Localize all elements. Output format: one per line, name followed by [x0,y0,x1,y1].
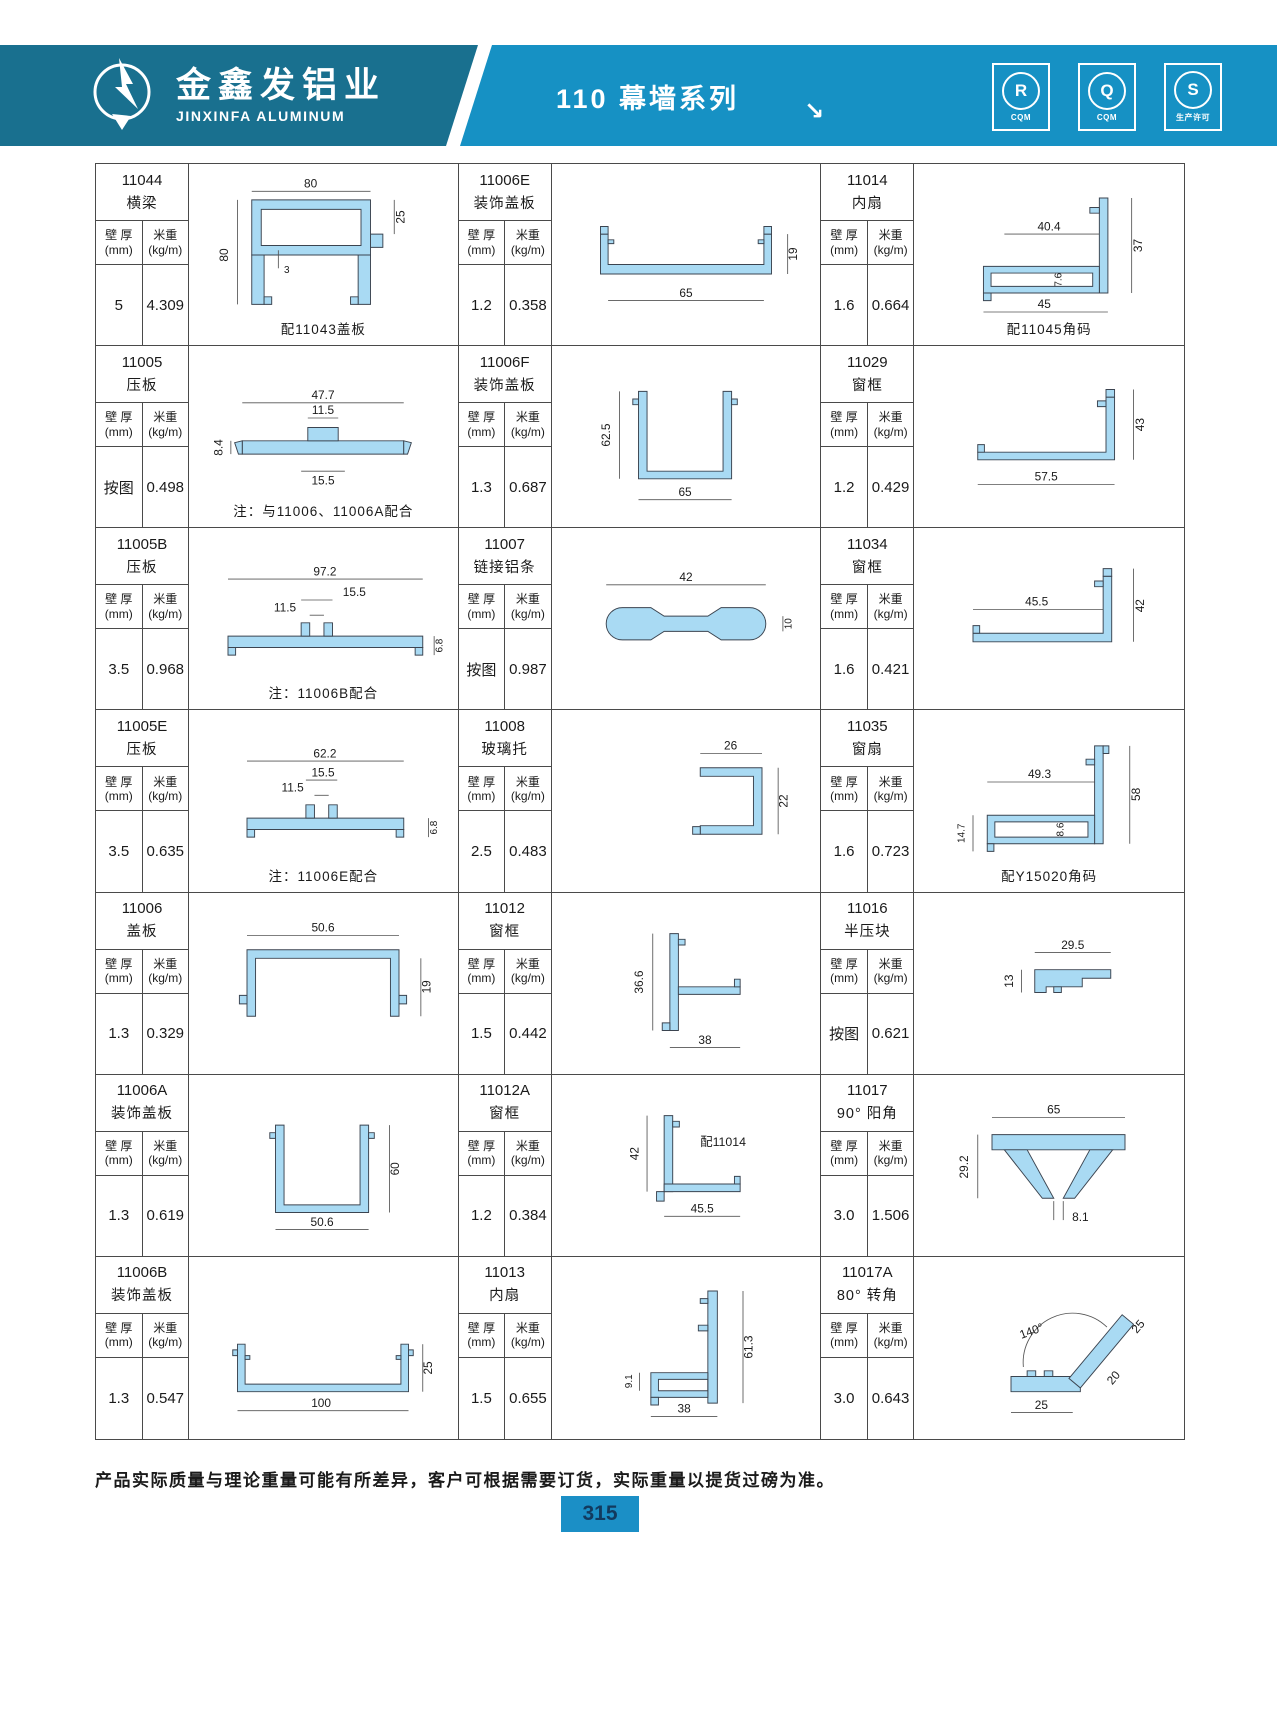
svg-text:42: 42 [627,1147,641,1160]
svg-text:47.7: 47.7 [312,388,335,402]
weight-value: 0.358 [505,265,551,345]
product-cell-11006: 11006盖板 壁 厚(mm)米重(kg/m) 1.30.329 50.6 19 [96,893,459,1075]
profile-diagram: 42 10 [554,543,818,695]
col-header-thickness: 壁 厚(mm) [821,403,868,446]
svg-text:50.6: 50.6 [312,921,335,935]
arrow-icon: ↘ [804,97,824,126]
thickness-value: 2.5 [459,811,506,891]
profile-diagram: 65 19 [554,179,818,331]
product-cell-11017: 1101790° 阳角 壁 厚(mm)米重(kg/m) 3.01.506 65 … [821,1075,1184,1257]
svg-text:38: 38 [698,1033,712,1047]
svg-text:61.3: 61.3 [741,1335,755,1358]
col-header-thickness: 壁 厚(mm) [821,1314,868,1357]
profile-drawing: 97.2 15.5 11.5 6.8 注：11006B配合 [189,528,458,709]
profile-drawing: 43 57.5 [914,346,1184,527]
thickness-value: 1.3 [459,447,506,527]
profile-diagram: 60 50.6 [191,1089,455,1241]
svg-text:3: 3 [284,265,290,276]
profile-note: 配11045角码 [914,318,1184,338]
product-name: 玻璃托 [459,738,551,759]
col-header-thickness: 壁 厚(mm) [459,1314,506,1357]
weight-value: 0.643 [868,1358,914,1439]
weight-value: 0.664 [868,265,914,345]
product-code: 11017A [821,1264,913,1281]
product-name: 压板 [96,374,188,395]
product-name: 窗框 [821,556,913,577]
profile-drawing: 36.6 38 [552,893,821,1074]
svg-text:49.3: 49.3 [1028,767,1051,781]
profile-drawing: 62.5 65 [552,346,821,527]
product-name: 压板 [96,556,188,577]
weight-value: 0.498 [143,447,189,527]
weight-value: 0.442 [505,994,551,1074]
product-cell-11013: 11013内扇 壁 厚(mm)米重(kg/m) 1.50.655 9.1 61.… [459,1257,822,1439]
svg-text:42: 42 [679,570,692,584]
profile-note: 注：11006B配合 [189,682,458,702]
product-name: 窗框 [459,920,551,941]
profile-drawing: 9.1 61.3 38 [552,1257,821,1439]
profile-diagram: 25 100 [191,1272,455,1424]
col-header-weight: 米重(kg/m) [505,585,551,628]
thickness-value: 3.0 [821,1358,868,1439]
col-header-weight: 米重(kg/m) [868,1132,914,1175]
col-header-weight: 米重(kg/m) [868,585,914,628]
product-cell-11006E: 11006E装饰盖板 壁 厚(mm)米重(kg/m) 1.20.358 65 1… [459,164,822,346]
col-header-thickness: 壁 厚(mm) [96,1132,143,1175]
col-header-thickness: 壁 厚(mm) [821,221,868,264]
weight-value: 0.421 [868,629,914,709]
product-grid: 11044横梁 壁 厚(mm)米重(kg/m) 54.309 80 80 25 … [95,163,1185,1440]
product-cell-11005B: 11005B压板 壁 厚(mm)米重(kg/m) 3.50.968 97.2 1… [96,528,459,710]
product-cell-11034: 11034窗框 壁 厚(mm)米重(kg/m) 1.60.421 45.5 42 [821,528,1184,710]
col-header-weight: 米重(kg/m) [143,585,189,628]
profile-drawing: 配11014 42 45.5 [552,1075,821,1256]
svg-text:15.5: 15.5 [343,585,366,599]
col-header-weight: 米重(kg/m) [505,221,551,264]
thickness-value: 3.0 [821,1176,868,1256]
svg-text:8.1: 8.1 [1072,1210,1089,1224]
svg-text:13: 13 [1002,974,1016,988]
weight-value: 0.621 [868,994,914,1074]
thickness-value: 1.5 [459,994,506,1074]
svg-text:25: 25 [1035,1398,1049,1412]
product-name: 装饰盖板 [96,1102,188,1123]
weight-value: 0.687 [505,447,551,527]
svg-text:80: 80 [217,248,231,262]
svg-text:29.2: 29.2 [957,1156,971,1179]
product-cell-11006A: 11006A装饰盖板 壁 厚(mm)米重(kg/m) 1.30.619 60 5… [96,1075,459,1257]
product-cell-11006B: 11006B装饰盖板 壁 厚(mm)米重(kg/m) 1.30.547 25 1… [96,1257,459,1439]
svg-text:65: 65 [678,485,692,499]
profile-diagram: 65 29.2 8.1 [917,1089,1181,1241]
company-logo: 金鑫发铝业 JINXINFA ALUMINUM [88,54,386,138]
svg-text:36.6: 36.6 [632,970,646,993]
col-header-thickness: 壁 厚(mm) [821,1132,868,1175]
product-code: 11012A [459,1082,551,1099]
col-header-weight: 米重(kg/m) [143,950,189,993]
cert-badge-q-icon: Q CQM [1078,63,1136,131]
svg-text:60: 60 [388,1162,402,1176]
col-header-thickness: 壁 厚(mm) [459,585,506,628]
svg-text:25: 25 [422,1361,436,1375]
svg-text:14.7: 14.7 [957,823,968,843]
col-header-thickness: 壁 厚(mm) [96,1314,143,1357]
profile-note: 注：与11006、11006A配合 [189,500,458,520]
product-code: 11006F [459,354,551,371]
product-name: 链接铝条 [459,556,551,577]
product-cell-11017A: 11017A80° 转角 壁 厚(mm)米重(kg/m) 3.00.643 14… [821,1257,1184,1439]
thickness-value: 3.5 [96,811,143,891]
profile-diagram: 43 57.5 [917,361,1181,513]
product-code: 11006A [96,1082,188,1099]
product-code: 11016 [821,900,913,917]
svg-text:45.5: 45.5 [691,1202,714,1216]
svg-text:62.2: 62.2 [314,746,337,760]
profile-drawing: 65 19 [552,164,821,345]
svg-text:8.4: 8.4 [212,439,226,456]
svg-text:57.5: 57.5 [1035,469,1058,483]
svg-text:26: 26 [724,739,738,753]
thickness-value: 按图 [459,629,506,709]
profile-diagram: 80 80 25 3 [191,179,455,331]
svg-text:38: 38 [677,1402,691,1416]
weight-value: 1.506 [868,1176,914,1256]
svg-text:97.2: 97.2 [314,564,337,578]
weight-value: 4.309 [143,265,189,345]
product-name: 盖板 [96,920,188,941]
thickness-value: 5 [96,265,143,345]
product-code: 11005E [96,718,188,735]
product-name: 横梁 [96,192,188,213]
svg-text:11.5: 11.5 [282,780,305,794]
thickness-value: 1.6 [821,811,868,891]
svg-text:10: 10 [783,618,794,630]
thickness-value: 3.5 [96,629,143,709]
company-logo-icon [88,54,162,138]
svg-text:22: 22 [777,794,791,807]
product-code: 11017 [821,1082,913,1099]
product-name: 装饰盖板 [459,192,551,213]
weight-value: 0.987 [505,629,551,709]
profile-diagram: 9.1 61.3 38 [554,1272,818,1424]
product-cell-11008: 11008玻璃托 壁 厚(mm)米重(kg/m) 2.50.483 26 22 [459,710,822,892]
product-name: 90° 阳角 [821,1102,913,1123]
svg-text:37: 37 [1131,238,1145,251]
profile-drawing: 47.7 11.5 8.4 15.5 注：与11006、11006A配合 [189,346,458,527]
col-header-weight: 米重(kg/m) [505,1314,551,1357]
product-name: 装饰盖板 [96,1284,188,1305]
svg-text:45: 45 [1038,297,1052,311]
thickness-value: 1.6 [821,265,868,345]
svg-text:40.4: 40.4 [1038,219,1061,233]
product-name: 窗框 [459,1102,551,1123]
product-cell-11007: 11007链接铝条 壁 厚(mm)米重(kg/m) 按图0.987 42 10 [459,528,822,710]
product-code: 11013 [459,1264,551,1281]
weight-value: 0.429 [868,447,914,527]
thickness-value: 1.3 [96,994,143,1074]
col-header-weight: 米重(kg/m) [505,767,551,810]
svg-text:58: 58 [1129,787,1143,801]
svg-text:65: 65 [679,285,693,299]
header-left-block: 金鑫发铝业 JINXINFA ALUMINUM [0,45,480,146]
page-number: 315 [561,1496,639,1532]
product-code: 11008 [459,718,551,735]
thickness-value: 按图 [96,447,143,527]
profile-drawing: 42 10 [552,528,821,709]
profile-drawing: 60 50.6 [189,1075,458,1256]
product-cell-11006F: 11006F装饰盖板 壁 厚(mm)米重(kg/m) 1.30.687 62.5… [459,346,822,528]
header-band: 金鑫发铝业 JINXINFA ALUMINUM 110 幕墙系列 ↘ R CQM… [0,45,1277,146]
col-header-weight: 米重(kg/m) [505,950,551,993]
profile-diagram: 49.3 58 8.6 14.7 [917,725,1181,877]
profile-diagram: 62.2 15.5 11.5 6.8 [191,725,455,877]
svg-text:7.6: 7.6 [1054,272,1065,286]
product-code: 11012 [459,900,551,917]
col-header-thickness: 壁 厚(mm) [821,767,868,810]
weight-value: 0.723 [868,811,914,891]
product-code: 11035 [821,718,913,735]
svg-text:100: 100 [312,1396,332,1410]
col-header-weight: 米重(kg/m) [505,1132,551,1175]
profile-diagram: 50.6 19 [191,907,455,1059]
svg-text:19: 19 [786,247,800,261]
svg-text:140°: 140° [1018,1320,1046,1342]
thickness-value: 1.5 [459,1358,506,1439]
svg-text:19: 19 [420,980,434,994]
thickness-value: 1.2 [459,265,506,345]
col-header-weight: 米重(kg/m) [143,403,189,446]
col-header-thickness: 壁 厚(mm) [96,403,143,446]
series-title: 110 幕墙系列 [556,77,739,116]
product-cell-11012A: 11012A窗框 壁 厚(mm)米重(kg/m) 1.20.384 配11014… [459,1075,822,1257]
product-name: 压板 [96,738,188,759]
product-cell-11035: 11035窗扇 壁 厚(mm)米重(kg/m) 1.60.723 49.3 58… [821,710,1184,892]
svg-text:50.6: 50.6 [311,1215,334,1229]
weight-value: 0.968 [143,629,189,709]
svg-text:65: 65 [1047,1103,1061,1117]
product-name: 窗框 [821,374,913,395]
profile-drawing: 29.5 13 [914,893,1184,1074]
col-header-thickness: 壁 厚(mm) [459,950,506,993]
profile-diagram: 62.5 65 [554,361,818,513]
thickness-value: 按图 [821,994,868,1074]
col-header-weight: 米重(kg/m) [505,403,551,446]
svg-text:62.5: 62.5 [599,423,613,446]
footer-disclaimer: 产品实际质量与理论重量可能有所差异，客户可根据需要订货，实际重量以提货过磅为准。 [95,1466,835,1491]
profile-diagram: 36.6 38 [554,907,818,1059]
product-name: 80° 转角 [821,1284,913,1305]
profile-drawing: 25 100 [189,1257,458,1439]
product-name: 内扇 [821,192,913,213]
profile-diagram: 配11014 42 45.5 [554,1089,818,1241]
svg-text:8.6: 8.6 [1055,822,1066,836]
profile-diagram: 97.2 15.5 11.5 6.8 [191,543,455,695]
profile-drawing: 62.2 15.5 11.5 6.8 注：11006E配合 [189,710,458,891]
svg-text:6.8: 6.8 [429,820,440,834]
product-code: 11007 [459,536,551,553]
svg-text:25: 25 [1129,1316,1148,1335]
profile-drawing: 140° 25 20 25 [914,1257,1184,1439]
svg-text:29.5: 29.5 [1061,938,1084,952]
col-header-weight: 米重(kg/m) [143,767,189,810]
profile-diagram: 26 22 [554,725,818,877]
profile-diagram: 45.5 42 [917,543,1181,695]
svg-text:25: 25 [394,210,408,224]
header-right-block: 110 幕墙系列 ↘ R CQM Q CQM S 生产许可 [456,45,1277,146]
profile-diagram: 47.7 11.5 8.4 15.5 [191,361,455,513]
product-name: 半压块 [821,920,913,941]
product-code: 11005 [96,354,188,371]
svg-text:80: 80 [304,179,318,191]
product-cell-11005E: 11005E压板 壁 厚(mm)米重(kg/m) 3.50.635 62.2 1… [96,710,459,892]
svg-text:11.5: 11.5 [274,600,297,614]
profile-note: 配Y15020角码 [914,865,1184,885]
profile-drawing: 80 80 25 3 配11043盖板 [189,164,458,345]
col-header-thickness: 壁 厚(mm) [96,585,143,628]
profile-drawing: 40.4 37 7.6 45 配11045角码 [914,164,1184,345]
col-header-weight: 米重(kg/m) [868,767,914,810]
product-code: 11034 [821,536,913,553]
product-code: 11006E [459,172,551,189]
svg-text:45.5: 45.5 [1025,595,1048,609]
certification-badges: R CQM Q CQM S 生产许可 [992,63,1222,131]
cert-badge-s-icon: S 生产许可 [1164,63,1222,131]
col-header-thickness: 壁 厚(mm) [96,950,143,993]
cert-badge-r-icon: R CQM [992,63,1050,131]
weight-value: 0.329 [143,994,189,1074]
thickness-value: 1.2 [821,447,868,527]
profile-drawing: 50.6 19 [189,893,458,1074]
svg-text:42: 42 [1133,599,1147,612]
thickness-value: 1.3 [96,1176,143,1256]
col-header-weight: 米重(kg/m) [868,403,914,446]
profile-drawing: 26 22 [552,710,821,891]
profile-note: 配11043盖板 [189,318,458,338]
product-cell-11012: 11012窗框 壁 厚(mm)米重(kg/m) 1.50.442 36.6 38 [459,893,822,1075]
product-cell-11044: 11044横梁 壁 厚(mm)米重(kg/m) 54.309 80 80 25 … [96,164,459,346]
company-name-en: JINXINFA ALUMINUM [176,108,386,124]
weight-value: 0.384 [505,1176,551,1256]
profile-drawing: 45.5 42 [914,528,1184,709]
profile-note: 注：11006E配合 [189,865,458,885]
weight-value: 0.635 [143,811,189,891]
col-header-thickness: 壁 厚(mm) [821,950,868,993]
profile-drawing: 65 29.2 8.1 [914,1075,1184,1256]
col-header-thickness: 壁 厚(mm) [96,221,143,264]
svg-text:9.1: 9.1 [624,1374,635,1388]
profile-note: 配11014 [700,1135,746,1149]
product-name: 装饰盖板 [459,374,551,395]
col-header-weight: 米重(kg/m) [143,1314,189,1357]
weight-value: 0.619 [143,1176,189,1256]
product-cell-11014: 11014内扇 壁 厚(mm)米重(kg/m) 1.60.664 40.4 37… [821,164,1184,346]
thickness-value: 1.2 [459,1176,506,1256]
product-cell-11029: 11029窗框 壁 厚(mm)米重(kg/m) 1.20.429 43 57.5 [821,346,1184,528]
product-code: 11044 [96,172,188,189]
col-header-thickness: 壁 厚(mm) [459,1132,506,1175]
weight-value: 0.655 [505,1358,551,1439]
svg-text:6.8: 6.8 [435,638,446,652]
product-name: 窗扇 [821,738,913,759]
col-header-weight: 米重(kg/m) [143,221,189,264]
svg-text:15.5: 15.5 [312,765,335,779]
product-code: 11029 [821,354,913,371]
product-code: 11006B [96,1264,188,1281]
col-header-weight: 米重(kg/m) [868,1314,914,1357]
col-header-thickness: 壁 厚(mm) [821,585,868,628]
col-header-thickness: 壁 厚(mm) [459,221,506,264]
col-header-weight: 米重(kg/m) [868,221,914,264]
weight-value: 0.547 [143,1358,189,1439]
weight-value: 0.483 [505,811,551,891]
thickness-value: 1.3 [96,1358,143,1439]
product-cell-11016: 11016半压块 壁 厚(mm)米重(kg/m) 按图0.621 29.5 13 [821,893,1184,1075]
product-code: 11005B [96,536,188,553]
catalog-page: 金鑫发铝业 JINXINFA ALUMINUM 110 幕墙系列 ↘ R CQM… [0,0,1277,1721]
col-header-weight: 米重(kg/m) [143,1132,189,1175]
svg-text:15.5: 15.5 [312,473,335,487]
svg-text:20: 20 [1104,1368,1123,1387]
col-header-weight: 米重(kg/m) [868,950,914,993]
col-header-thickness: 壁 厚(mm) [459,767,506,810]
col-header-thickness: 壁 厚(mm) [459,403,506,446]
profile-diagram: 29.5 13 [917,907,1181,1059]
profile-diagram: 140° 25 20 25 [917,1272,1181,1424]
product-code: 11006 [96,900,188,917]
product-code: 11014 [821,172,913,189]
svg-text:11.5: 11.5 [312,403,335,417]
product-name: 内扇 [459,1284,551,1305]
col-header-thickness: 壁 厚(mm) [96,767,143,810]
profile-diagram: 40.4 37 7.6 45 [917,179,1181,331]
product-cell-11005: 11005压板 壁 厚(mm)米重(kg/m) 按图0.498 47.7 11.… [96,346,459,528]
profile-drawing: 49.3 58 8.6 14.7 配Y15020角码 [914,710,1184,891]
svg-text:43: 43 [1133,417,1147,431]
company-name-cn: 金鑫发铝业 [176,67,386,106]
thickness-value: 1.6 [821,629,868,709]
